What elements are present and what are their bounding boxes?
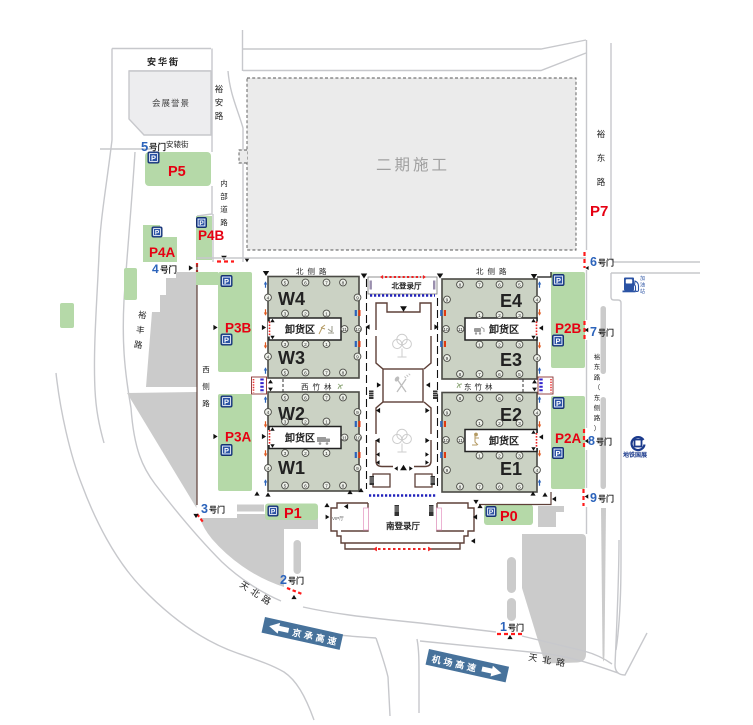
svg-text:5: 5 <box>141 139 148 154</box>
svg-text:8: 8 <box>459 396 462 402</box>
svg-text:5: 5 <box>518 372 521 378</box>
svg-text:P4A: P4A <box>149 245 176 260</box>
svg-text:P2B: P2B <box>555 321 582 336</box>
svg-text:东: 东 <box>597 153 606 163</box>
svg-text:11: 11 <box>342 435 347 441</box>
svg-text:东: 东 <box>594 362 601 371</box>
svg-text:6: 6 <box>498 282 501 288</box>
svg-text:2: 2 <box>304 419 307 425</box>
svg-text:7: 7 <box>325 370 328 376</box>
svg-text:9: 9 <box>446 356 449 362</box>
svg-text:6: 6 <box>304 395 307 401</box>
svg-text:8: 8 <box>342 370 345 376</box>
svg-text:7: 7 <box>478 484 481 490</box>
svg-text:卸货区: 卸货区 <box>285 323 315 336</box>
svg-text:路: 路 <box>597 177 606 187</box>
svg-text:7: 7 <box>325 280 328 286</box>
svg-text:西: 西 <box>202 365 210 374</box>
svg-text:地铁国展: 地铁国展 <box>623 451 647 459</box>
svg-text:11: 11 <box>458 327 463 333</box>
svg-text:3: 3 <box>284 311 287 317</box>
svg-text:P: P <box>555 449 560 458</box>
svg-text:2: 2 <box>498 421 501 427</box>
svg-text:2: 2 <box>498 453 501 459</box>
svg-text:3: 3 <box>201 502 208 516</box>
svg-text:9: 9 <box>446 297 449 303</box>
svg-text:6: 6 <box>498 372 501 378</box>
svg-text:7: 7 <box>590 325 597 339</box>
svg-text:3: 3 <box>518 453 521 459</box>
svg-text:3: 3 <box>284 451 287 457</box>
svg-text:1: 1 <box>478 453 481 459</box>
svg-text:号门: 号门 <box>508 623 524 633</box>
svg-text:卸货区: 卸货区 <box>489 435 519 448</box>
svg-text:裕: 裕 <box>215 84 224 94</box>
svg-text:部: 部 <box>220 191 228 201</box>
svg-text:2: 2 <box>280 573 287 587</box>
svg-text:内: 内 <box>220 178 228 188</box>
svg-text:8: 8 <box>342 483 345 489</box>
svg-text:2: 2 <box>304 451 307 457</box>
svg-text:4: 4 <box>536 297 539 303</box>
svg-text:4: 4 <box>152 262 159 276</box>
svg-text:3: 3 <box>518 313 521 319</box>
svg-text:1: 1 <box>500 620 507 634</box>
svg-text:P3B: P3B <box>225 321 252 336</box>
svg-text:3: 3 <box>518 342 521 348</box>
svg-text:9: 9 <box>356 354 359 360</box>
svg-text:W3: W3 <box>278 348 305 368</box>
svg-text:2: 2 <box>304 342 307 348</box>
svg-text:安: 安 <box>215 98 224 108</box>
svg-text:5: 5 <box>518 282 521 288</box>
svg-text:P: P <box>224 277 229 286</box>
svg-text:8: 8 <box>342 280 345 286</box>
svg-text:E4: E4 <box>500 291 522 311</box>
svg-text:（: （ <box>594 384 601 392</box>
svg-text:3: 3 <box>284 419 287 425</box>
svg-text:站: 站 <box>640 288 645 295</box>
svg-text:7: 7 <box>325 483 328 489</box>
svg-text:9: 9 <box>356 466 359 472</box>
svg-text:1: 1 <box>325 342 328 348</box>
svg-text:7: 7 <box>478 282 481 288</box>
svg-text:路: 路 <box>202 398 210 408</box>
svg-text:8: 8 <box>459 484 462 490</box>
svg-text:4: 4 <box>536 410 539 416</box>
svg-text:11: 11 <box>342 327 347 333</box>
svg-text:号门: 号门 <box>288 576 304 586</box>
svg-text:9: 9 <box>356 295 359 301</box>
svg-text:北侧路: 北侧路 <box>296 266 331 276</box>
svg-text:P: P <box>556 276 561 285</box>
svg-text:8: 8 <box>459 282 462 288</box>
svg-text:VIP厅: VIP厅 <box>332 516 344 521</box>
svg-text:东竹林: 东竹林 <box>464 382 496 392</box>
svg-text:7: 7 <box>325 395 328 401</box>
svg-text:2: 2 <box>498 342 501 348</box>
svg-text:11: 11 <box>458 438 463 444</box>
svg-text:裕: 裕 <box>594 352 601 361</box>
svg-text:4: 4 <box>267 295 270 301</box>
svg-text:W4: W4 <box>278 289 305 309</box>
svg-text:裕: 裕 <box>597 129 606 139</box>
svg-text:5: 5 <box>518 484 521 490</box>
svg-text:5: 5 <box>284 280 287 286</box>
svg-text:2: 2 <box>498 313 501 319</box>
svg-text:1: 1 <box>325 419 328 425</box>
svg-text:安华街: 安华街 <box>147 56 180 67</box>
svg-text:号门: 号门 <box>596 437 612 447</box>
svg-text:侧: 侧 <box>202 381 210 391</box>
svg-text:4: 4 <box>536 468 539 474</box>
svg-text:路: 路 <box>594 413 601 422</box>
svg-text:5: 5 <box>284 483 287 489</box>
svg-text:号门: 号门 <box>149 142 166 152</box>
svg-text:10: 10 <box>443 327 449 333</box>
svg-text:4: 4 <box>267 354 270 360</box>
svg-text:路: 路 <box>220 217 228 227</box>
svg-text:10: 10 <box>355 327 361 333</box>
svg-text:卸货区: 卸货区 <box>285 432 315 445</box>
svg-text:油: 油 <box>640 281 645 288</box>
svg-text:号门: 号门 <box>598 258 614 268</box>
svg-text:西竹林: 西竹林 <box>301 382 336 392</box>
svg-text:侧: 侧 <box>594 403 601 412</box>
svg-text:E1: E1 <box>500 459 522 479</box>
svg-text:P: P <box>224 446 229 455</box>
svg-text:6: 6 <box>304 280 307 286</box>
svg-text:5: 5 <box>518 396 521 402</box>
svg-text:P5: P5 <box>168 164 186 180</box>
svg-text:P3A: P3A <box>225 430 252 445</box>
svg-text:9: 9 <box>446 410 449 416</box>
svg-text:9: 9 <box>446 468 449 474</box>
svg-text:8: 8 <box>459 372 462 378</box>
svg-text:1: 1 <box>478 421 481 427</box>
svg-text:9: 9 <box>590 491 597 505</box>
svg-text:加: 加 <box>640 275 645 282</box>
svg-text:6: 6 <box>590 255 597 269</box>
svg-text:卸货区: 卸货区 <box>489 323 519 336</box>
svg-text:1: 1 <box>325 311 328 317</box>
svg-text:二期施工: 二期施工 <box>376 156 450 174</box>
svg-text:8: 8 <box>588 434 595 448</box>
svg-text:道: 道 <box>220 204 228 214</box>
svg-text:9: 9 <box>356 410 359 416</box>
svg-text:7: 7 <box>478 396 481 402</box>
svg-text:P: P <box>271 508 276 515</box>
svg-text:6: 6 <box>498 396 501 402</box>
svg-text:P: P <box>489 509 494 516</box>
svg-text:E3: E3 <box>500 350 522 370</box>
svg-text:号门: 号门 <box>209 505 225 515</box>
svg-text:路: 路 <box>594 372 601 381</box>
svg-text:号门: 号门 <box>598 328 614 338</box>
svg-text:P: P <box>224 397 229 406</box>
svg-text:P7: P7 <box>590 203 608 220</box>
svg-text:7: 7 <box>478 372 481 378</box>
svg-text:北登录厅: 北登录厅 <box>392 281 422 291</box>
svg-text:安辕街: 安辕街 <box>166 139 189 149</box>
svg-text:4: 4 <box>267 466 270 472</box>
svg-text:3: 3 <box>284 342 287 348</box>
svg-text:6: 6 <box>304 483 307 489</box>
svg-text:1: 1 <box>478 313 481 319</box>
svg-text:1: 1 <box>478 342 481 348</box>
svg-text:10: 10 <box>355 435 361 441</box>
svg-text:10: 10 <box>443 438 449 444</box>
svg-text:6: 6 <box>498 484 501 490</box>
svg-text:5: 5 <box>284 395 287 401</box>
svg-text:会展誉景: 会展誉景 <box>152 98 190 108</box>
svg-text:4: 4 <box>536 356 539 362</box>
svg-text:P0: P0 <box>500 509 518 525</box>
svg-text:8: 8 <box>342 395 345 401</box>
svg-text:5: 5 <box>284 370 287 376</box>
svg-text:P: P <box>224 335 229 344</box>
svg-text:号门: 号门 <box>598 494 614 504</box>
svg-text:6: 6 <box>304 370 307 376</box>
svg-text:P: P <box>151 153 156 162</box>
svg-text:北侧路: 北侧路 <box>476 266 511 276</box>
svg-text:W1: W1 <box>278 458 305 478</box>
svg-text:南登录厅: 南登录厅 <box>386 521 421 531</box>
svg-text:P: P <box>555 336 560 345</box>
svg-text:东: 东 <box>594 393 601 402</box>
svg-text:P1: P1 <box>284 506 302 522</box>
svg-text:1: 1 <box>325 451 328 457</box>
svg-text:）: ） <box>594 424 601 432</box>
svg-text:P: P <box>155 229 160 236</box>
svg-text:P2A: P2A <box>555 431 582 446</box>
svg-text:3: 3 <box>518 421 521 427</box>
svg-text:4: 4 <box>267 410 270 416</box>
svg-text:P: P <box>199 220 204 227</box>
svg-text:2: 2 <box>304 311 307 317</box>
svg-text:路: 路 <box>215 111 224 121</box>
svg-text:号门: 号门 <box>160 265 177 275</box>
svg-text:P4B: P4B <box>198 228 225 243</box>
svg-text:P: P <box>556 399 561 408</box>
